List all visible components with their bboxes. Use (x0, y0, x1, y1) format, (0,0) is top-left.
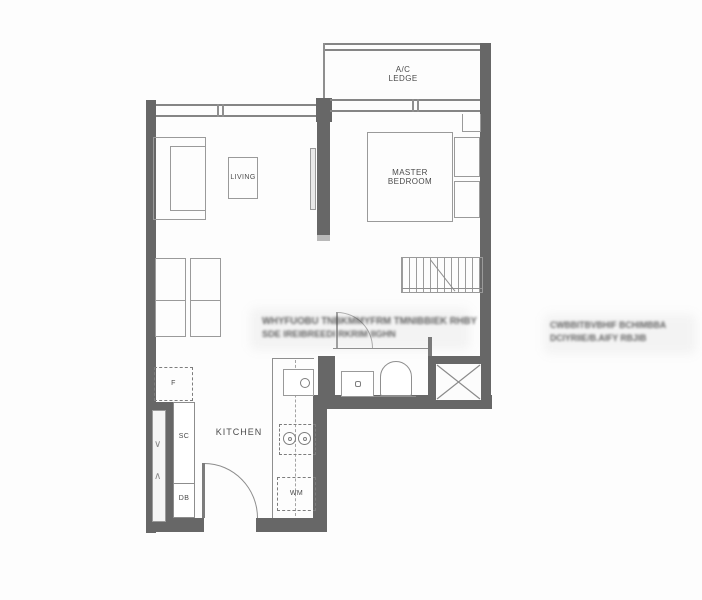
duct-shaft: ∨ ∧ (152, 410, 166, 522)
sink (283, 369, 314, 396)
wall-end-cap (317, 235, 330, 241)
master-bedroom-label-line1: MASTER (392, 168, 428, 177)
wall-kitchen-right (313, 395, 327, 532)
watermark-right: CWBBITBVBHIF BCHIMBBA DCIYRIIE/B.AIFY RB… (550, 320, 695, 343)
kitchen-label-text: KITCHEN (216, 427, 263, 438)
ac-ledge-label: A/C LEDGE (368, 62, 438, 86)
service-cabinet: SC DB (173, 402, 195, 518)
bathroom-top-line (333, 348, 428, 349)
hob-burner-right-knob (303, 437, 307, 441)
dining-table-left-divider (156, 300, 185, 301)
fridge-label: F (171, 380, 176, 388)
fridge: F (154, 367, 193, 401)
basin-drain (355, 381, 361, 387)
toilet-base-line (374, 396, 416, 397)
wall-living-bedroom (317, 120, 330, 235)
counter-left-edge (272, 358, 273, 518)
ac-ledge-label-line1: A/C (396, 65, 411, 74)
coffee-table: LIVING (228, 157, 258, 199)
bedroom-corner-cabinet (462, 114, 481, 132)
washing-machine-label: WM (290, 490, 303, 498)
wall-right (480, 43, 491, 409)
window-living-mullion-1 (217, 104, 219, 117)
floor-plan: A/C LEDGE LIVING MASTER BEDROOM (0, 0, 702, 600)
nightstand-lower (454, 181, 480, 218)
ac-ledge-outline-left (323, 43, 325, 101)
service-cabinet-label: SC (174, 433, 194, 441)
service-cabinet-divider (174, 483, 194, 484)
bedroom-sliding-door-leaf (310, 148, 316, 210)
entrance-door-leaf (202, 463, 205, 518)
basin (341, 371, 374, 397)
counter-top-edge (272, 358, 314, 359)
hob-burner-right (298, 432, 311, 445)
wardrobe-diagonal (430, 259, 455, 291)
watermark-right-line2: DCIYRIIE/B.AIFY RBJIB (550, 333, 689, 343)
duct-symbol-lower: ∧ (154, 471, 161, 482)
watermark-center-line2: SDE IREIBREEDI RKRIM IIGHN (262, 329, 459, 340)
window-bedroom-mullion-1 (412, 99, 414, 112)
db-label: DB (174, 495, 194, 503)
shower-box (436, 364, 481, 400)
sofa-seat (170, 146, 206, 211)
toilet (380, 361, 412, 396)
wall-bathroom-pier (318, 356, 335, 398)
bed: MASTER BEDROOM (367, 132, 453, 222)
nightstand-upper (454, 137, 480, 177)
dining-table-left (155, 258, 186, 337)
watermark-right-line1: CWBBITBVBHIF BCHIMBBA (550, 320, 689, 330)
wall-bottom-right-of-entrance (256, 518, 327, 532)
wardrobe (401, 257, 483, 293)
watermark-center-line1: WHYFUOBU TNBKMMYFRM TMNIBBIEK RHBY (262, 316, 459, 327)
hob-burner-left (283, 432, 296, 445)
watermark-center: WHYFUOBU TNBKMMYFRM TMNIBBIEK RHBY SDE I… (262, 316, 467, 340)
sink-faucet (300, 378, 310, 388)
window-living-mullion-2 (222, 104, 224, 117)
living-label: LIVING (230, 174, 255, 182)
kitchen-label: KITCHEN (208, 425, 270, 439)
dining-table-right (190, 258, 221, 337)
window-living (156, 104, 316, 117)
window-bedroom (330, 99, 480, 112)
hob (279, 424, 316, 455)
entrance-door-arc (204, 463, 258, 518)
master-bedroom-label-line2: BEDROOM (388, 177, 432, 186)
window-bedroom-mullion-2 (417, 99, 419, 112)
ac-ledge-label-line2: LEDGE (388, 74, 417, 83)
hob-burner-left-knob (288, 437, 292, 441)
washing-machine: WM (277, 477, 316, 511)
dining-table-right-divider (191, 300, 220, 301)
shower-box-x-icon (436, 364, 481, 400)
ac-ledge-outline-top (323, 43, 488, 51)
duct-symbol-upper: ∨ (154, 439, 161, 450)
wardrobe-shelf-line (402, 288, 482, 289)
